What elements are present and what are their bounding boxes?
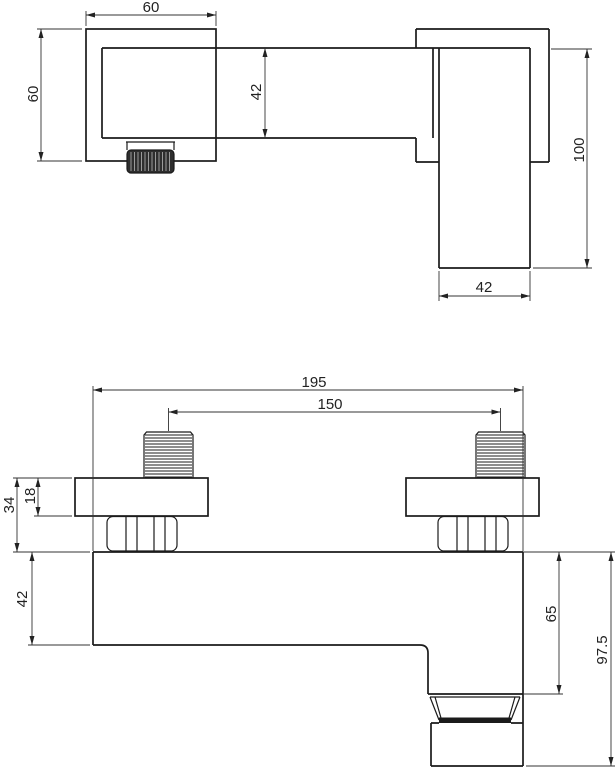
dim-label-inlet-spacing: 150 xyxy=(317,396,342,413)
dim-label-body-height-side: 42 xyxy=(248,84,265,101)
right-nut-outline xyxy=(438,517,508,552)
left-nut-outline xyxy=(107,517,177,552)
spout-aerator xyxy=(430,697,523,766)
dim-label-handle-width: 42 xyxy=(476,279,493,296)
dim-label-plate-width: 60 xyxy=(143,0,160,16)
dim-overall-width: 195 xyxy=(93,374,523,551)
dim-body-to-spout-end: 97.5 xyxy=(523,552,615,766)
technical-drawing: 60 60 42 100 42 xyxy=(0,0,616,771)
right-nut-flats xyxy=(457,517,496,551)
front-mixer-body xyxy=(93,552,523,766)
dim-handle-length: 100 xyxy=(533,49,592,268)
left-union-nut xyxy=(107,517,177,552)
drawing-canvas: 60 60 42 100 42 xyxy=(0,0,616,771)
dim-plate-height: 60 xyxy=(25,29,82,161)
dim-label-body-to-spout-end: 97.5 xyxy=(594,635,611,664)
side-right-plate xyxy=(416,29,549,162)
dim-plate-width: 60 xyxy=(86,0,216,26)
spout-tip xyxy=(431,723,523,766)
right-union-nut xyxy=(438,517,508,552)
side-view: 60 60 42 100 42 xyxy=(25,0,592,301)
dim-label-plate-nut-depth: 34 xyxy=(1,497,18,514)
dim-inlet-spacing: 150 xyxy=(169,396,501,431)
dim-label-plate-depth: 18 xyxy=(22,488,39,505)
dim-label-handle-length: 100 xyxy=(571,137,588,162)
dim-body-to-aerator: 65 xyxy=(523,552,563,694)
hose-outlet-collar xyxy=(126,142,175,150)
left-thread-hatch xyxy=(145,435,192,477)
dim-plate-depth: 18 xyxy=(22,478,72,516)
right-inlet-thread xyxy=(476,432,525,478)
dim-handle-width: 42 xyxy=(439,271,530,301)
left-nut-flats xyxy=(126,517,165,551)
dim-label-plate-height: 60 xyxy=(25,86,42,103)
side-handle xyxy=(439,48,530,268)
aerator-basin xyxy=(430,697,520,720)
hose-outlet-thread xyxy=(127,150,174,173)
dim-label-body-height-front: 42 xyxy=(14,591,31,608)
front-right-plate xyxy=(406,478,539,516)
dim-label-overall-width: 195 xyxy=(301,374,326,391)
dim-body-height-front: 42 xyxy=(14,552,90,645)
front-view: 195 150 34 18 42 65 xyxy=(1,374,615,766)
left-inlet-thread xyxy=(144,432,193,478)
dim-label-body-to-aerator: 65 xyxy=(543,606,560,623)
dim-body-height-side: 42 xyxy=(248,48,268,138)
dim-plate-nut-depth: 34 xyxy=(1,478,90,552)
side-mixer-body xyxy=(102,48,530,138)
aerator-screen xyxy=(439,718,511,724)
front-left-plate xyxy=(75,478,208,516)
right-thread-hatch xyxy=(477,435,524,477)
